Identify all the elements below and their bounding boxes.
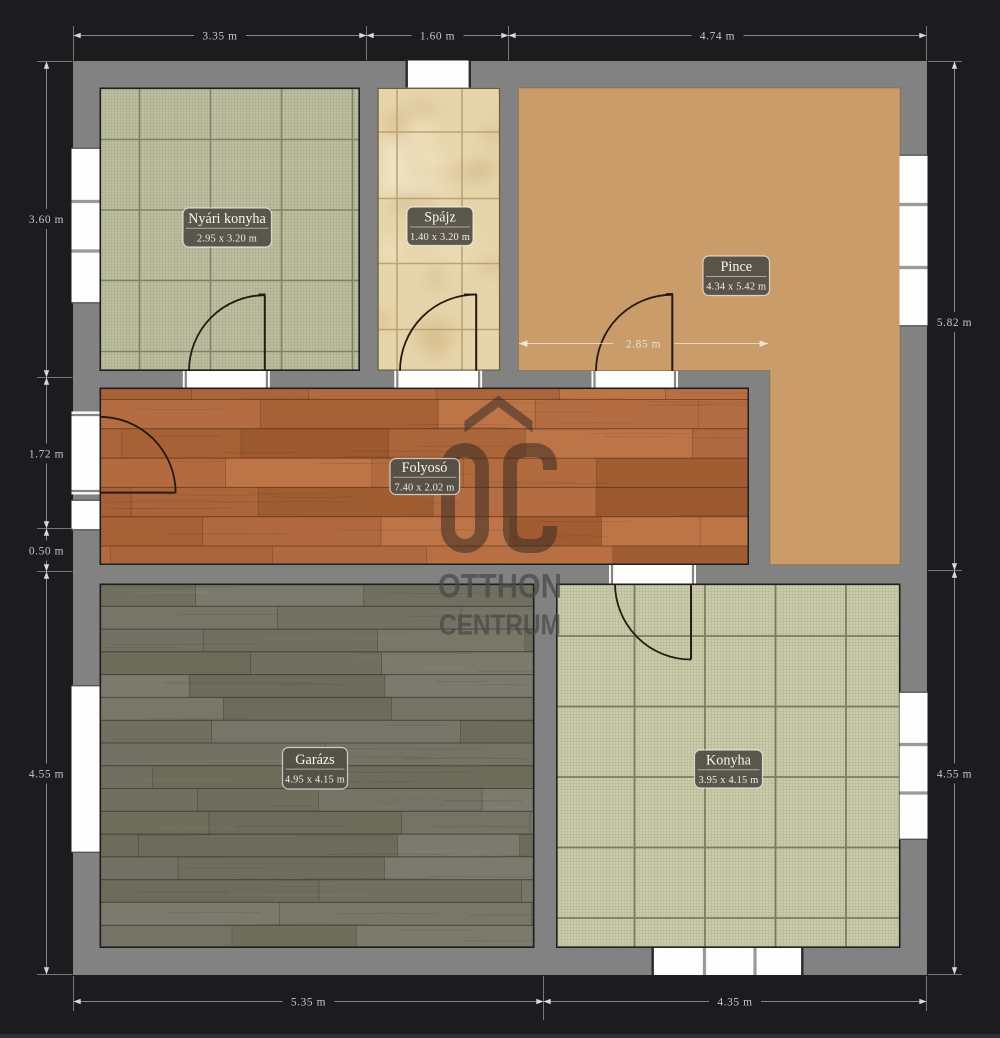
svg-text:2.85 m: 2.85 m bbox=[626, 339, 661, 351]
svg-text:Folyosó: Folyosó bbox=[402, 460, 448, 476]
svg-text:2.95 x 3.20 m: 2.95 x 3.20 m bbox=[197, 233, 257, 244]
svg-text:4.34 x 5.42 m: 4.34 x 5.42 m bbox=[706, 282, 766, 293]
svg-text:Spájz: Spájz bbox=[424, 210, 456, 226]
svg-text:Nyári konyha: Nyári konyha bbox=[188, 211, 266, 227]
svg-text:1.60 m: 1.60 m bbox=[420, 31, 455, 43]
svg-text:Konyha: Konyha bbox=[706, 752, 752, 768]
svg-text:Garázs: Garázs bbox=[295, 752, 335, 768]
svg-text:5.82 m: 5.82 m bbox=[937, 317, 972, 329]
svg-text:0.50 m: 0.50 m bbox=[29, 546, 64, 558]
svg-text:4.95 x 4.15 m: 4.95 x 4.15 m bbox=[285, 774, 345, 785]
svg-text:4.55 m: 4.55 m bbox=[29, 769, 64, 781]
svg-text:4.74 m: 4.74 m bbox=[700, 31, 735, 43]
svg-text:3.60 m: 3.60 m bbox=[29, 214, 64, 226]
svg-text:1.40 x 3.20 m: 1.40 x 3.20 m bbox=[410, 232, 470, 243]
svg-text:1.72 m: 1.72 m bbox=[29, 449, 64, 461]
svg-text:3.35 m: 3.35 m bbox=[202, 31, 237, 43]
svg-text:5.35 m: 5.35 m bbox=[291, 997, 326, 1009]
svg-text:7.40 x 2.02 m: 7.40 x 2.02 m bbox=[394, 482, 454, 493]
svg-text:Pince: Pince bbox=[721, 259, 753, 275]
svg-text:3.95 x 4.15 m: 3.95 x 4.15 m bbox=[698, 775, 758, 786]
svg-text:OTTHON: OTTHON bbox=[438, 568, 562, 606]
svg-text:4.35 m: 4.35 m bbox=[717, 997, 752, 1009]
svg-text:CENTRUM: CENTRUM bbox=[439, 610, 561, 642]
svg-text:4.55 m: 4.55 m bbox=[937, 769, 972, 781]
